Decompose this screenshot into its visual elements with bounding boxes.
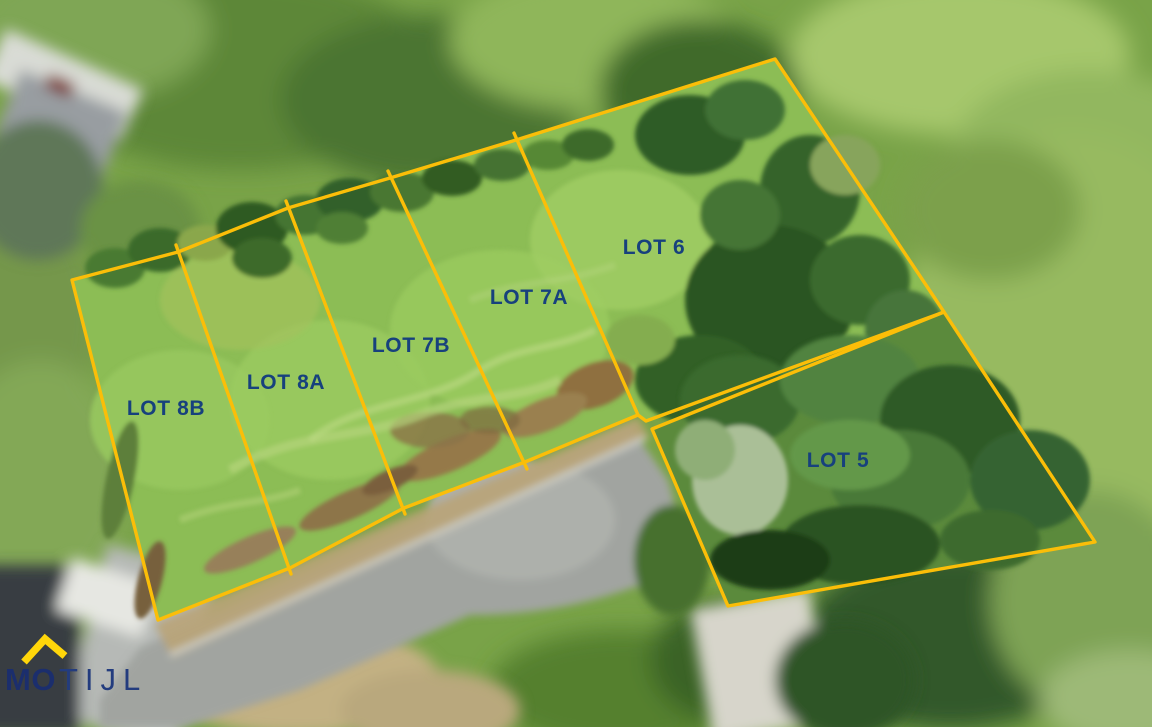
aerial-photo	[0, 0, 1152, 727]
brand-logo-text: MOTIJL	[5, 664, 147, 695]
brand-logo: MOTIJL	[0, 626, 170, 716]
lot-label-7b: LOT 7B	[372, 334, 450, 358]
brand-logo-text-bold: MO	[5, 662, 56, 697]
lot-label-8a: LOT 8A	[247, 371, 325, 395]
lot-label-7a: LOT 7A	[490, 286, 568, 310]
lot-label-8b: LOT 8B	[127, 397, 205, 421]
brand-logo-text-light: TIJL	[59, 662, 147, 697]
lot-label-6: LOT 6	[623, 236, 686, 260]
aerial-lot-map: LOT 8B LOT 8A LOT 7B LOT 7A LOT 6 LOT 5 …	[0, 0, 1152, 727]
lot-label-5: LOT 5	[807, 449, 870, 473]
